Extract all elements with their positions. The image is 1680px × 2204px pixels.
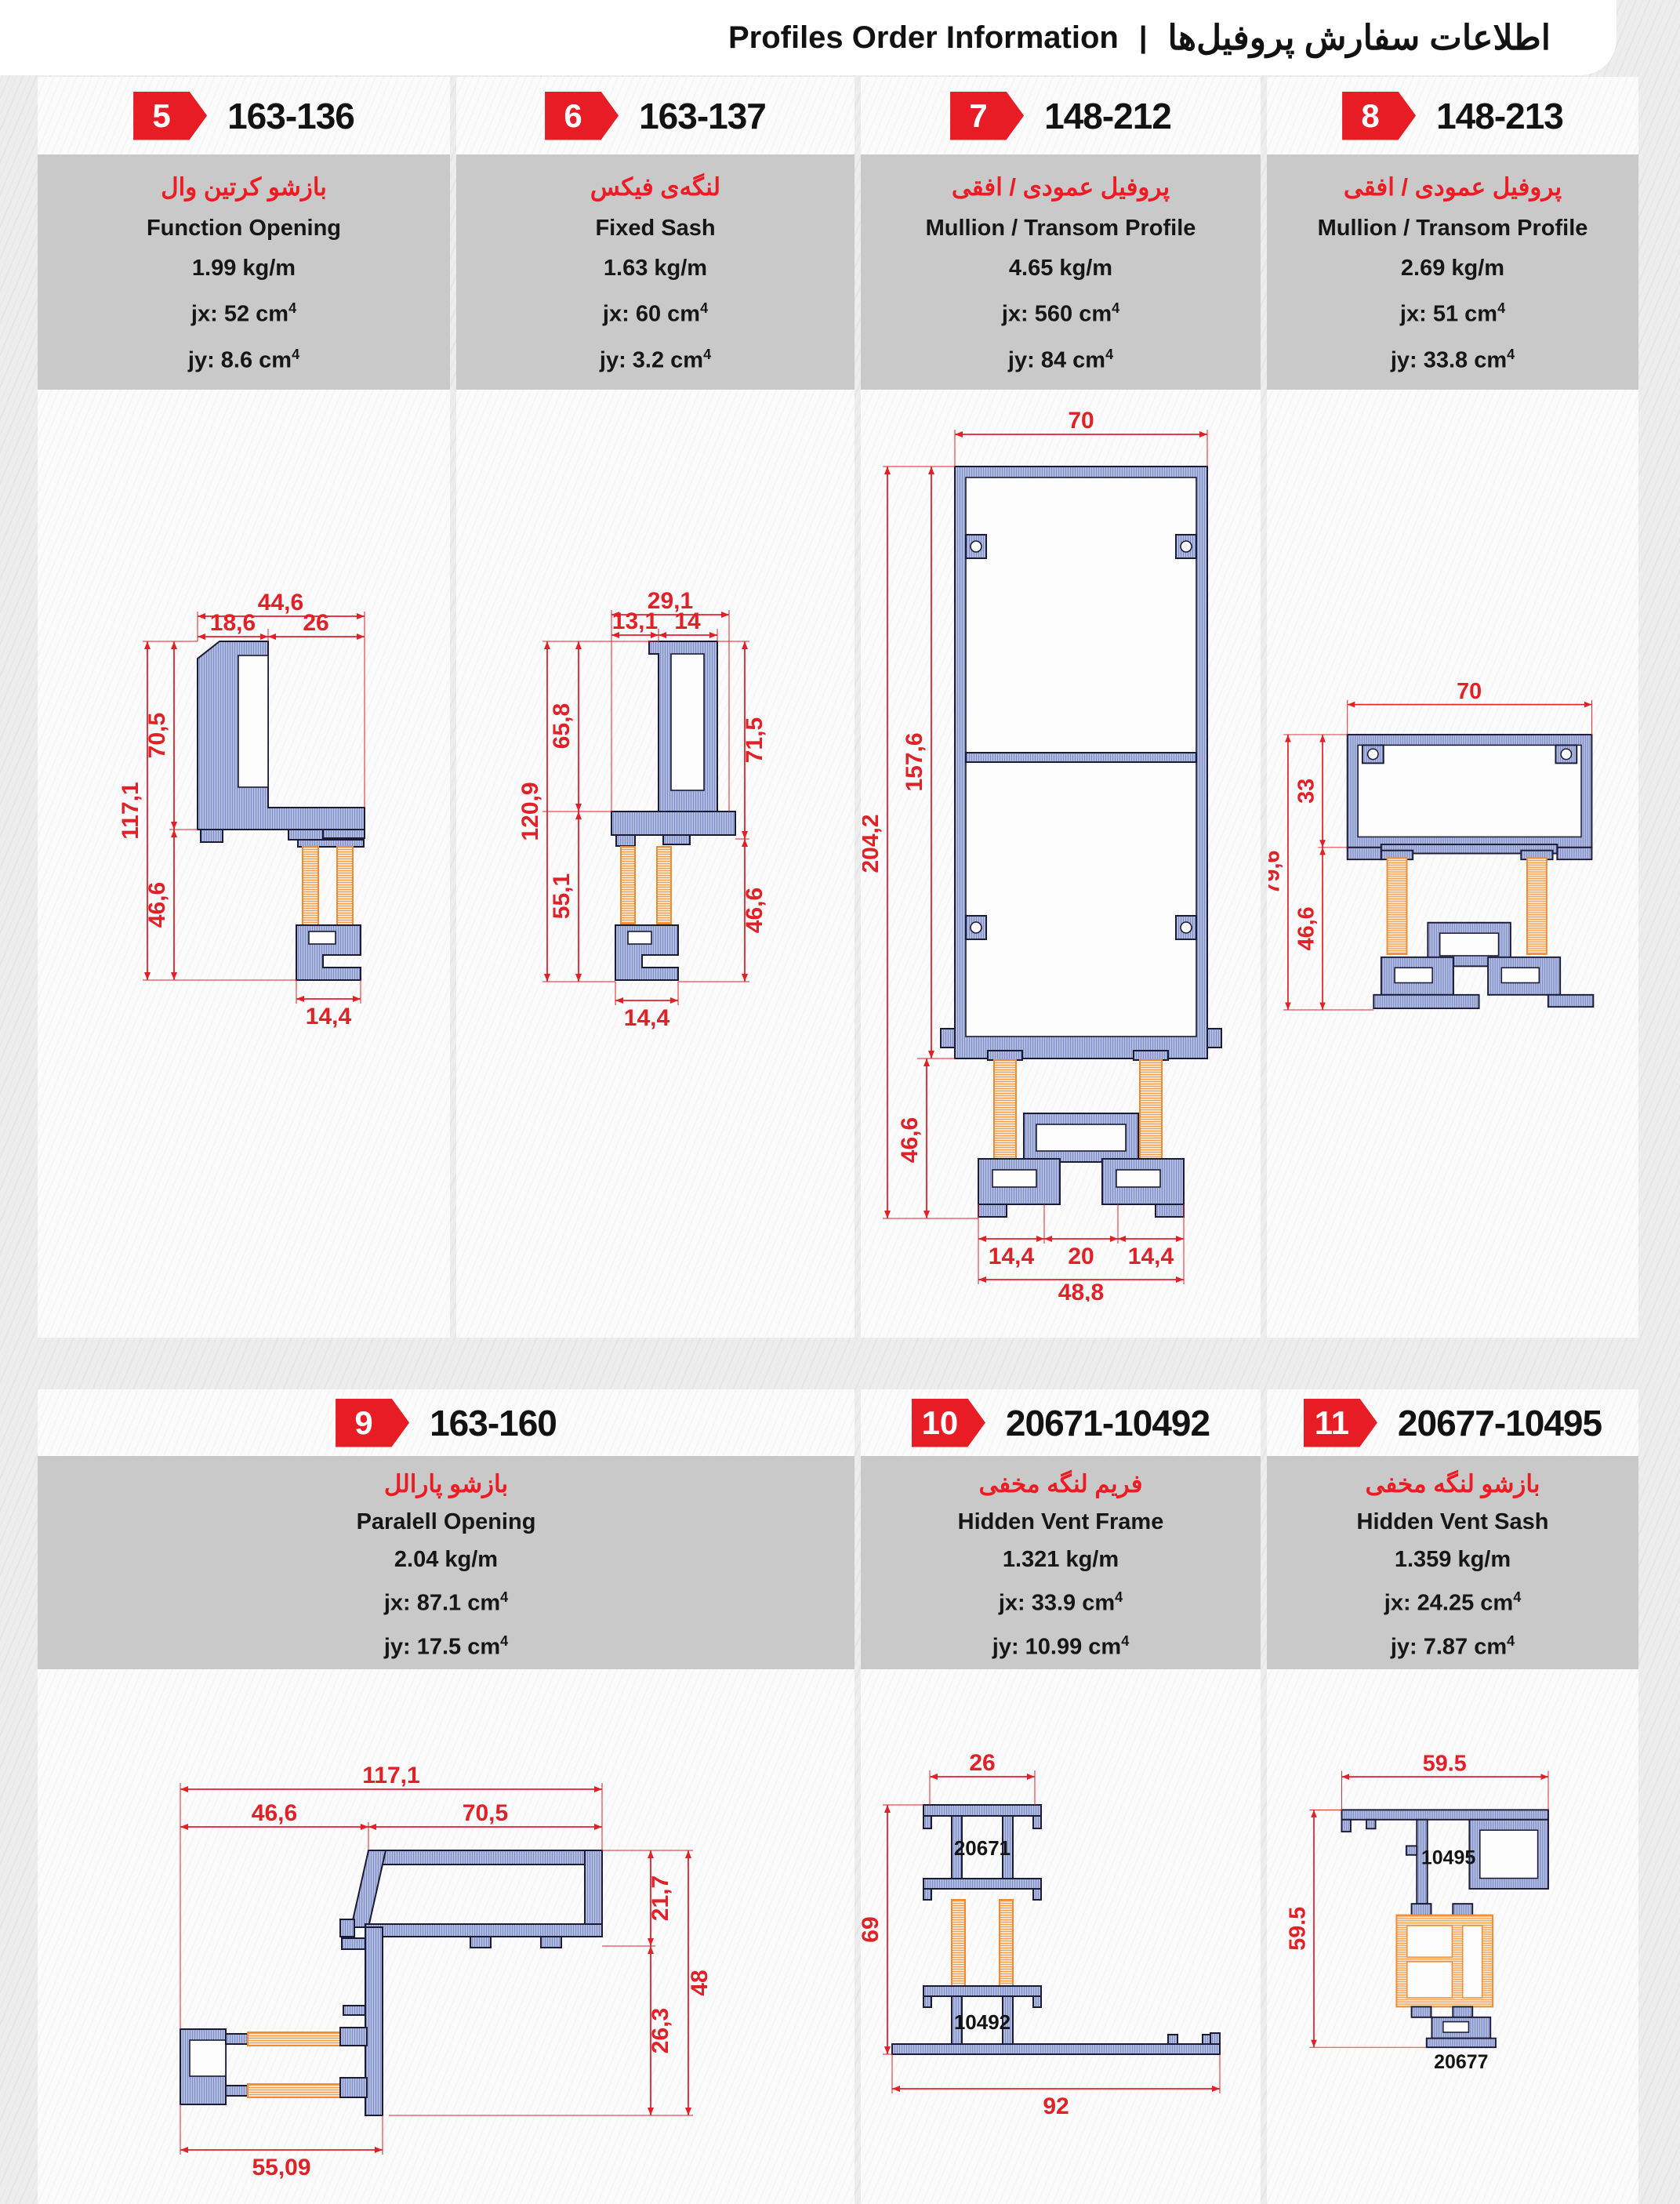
name-english: Hidden Vent Sash: [1267, 1503, 1638, 1541]
weight: 1.321 kg/m: [861, 1541, 1261, 1578]
moment-jy: jy: 84 cm4: [861, 335, 1261, 381]
name-english: Function Opening: [38, 208, 450, 249]
svg-text:59.5: 59.5: [1286, 1907, 1311, 1951]
title-separator: |: [1138, 21, 1149, 55]
profile-geometry: [198, 641, 365, 980]
profile-code: 163-136: [227, 95, 354, 137]
info-box: پروفیل عمودی / افقی Mullion / Transom Pr…: [1267, 154, 1638, 390]
svg-text:46,6: 46,6: [144, 882, 170, 928]
index-badge: 5: [133, 92, 207, 140]
name-english: Hidden Vent Frame: [861, 1503, 1261, 1541]
card-header: 9 163-160: [38, 1389, 855, 1456]
svg-text:70,5: 70,5: [144, 713, 170, 758]
profile-card-20671-10492: 10 20671-10492 فریم لنگه مخفی Hidden Ven…: [861, 1389, 1261, 2204]
svg-text:26,3: 26,3: [648, 2008, 673, 2053]
page-title-persian: اطلاعات سفارش پروفیل‌ها: [1167, 18, 1551, 58]
moment-jy: jy: 3.2 cm4: [456, 335, 855, 381]
weight: 1.99 kg/m: [38, 249, 450, 289]
svg-text:46,6: 46,6: [742, 888, 767, 933]
svg-text:10492: 10492: [954, 2010, 1011, 2034]
name-persian: لنگه‌ی فیکس: [456, 167, 855, 208]
card-header: 7 148-212: [861, 77, 1261, 154]
svg-text:204,2: 204,2: [862, 814, 884, 873]
svg-text:26: 26: [969, 1750, 995, 1776]
weight: 1.63 kg/m: [456, 249, 855, 289]
svg-text:59.5: 59.5: [1423, 1752, 1467, 1777]
profile-geometry: [1348, 735, 1594, 1008]
moment-jx: jx: 33.9 cm4: [861, 1578, 1261, 1622]
index-badge: 7: [950, 92, 1024, 140]
card-header: 11 20677-10495: [1267, 1389, 1638, 1456]
svg-text:13,1: 13,1: [612, 608, 658, 634]
cross-section-drawing: 29,1 13,1 14 120,9 65,8 55,1 71,5: [502, 580, 831, 1145]
moment-jx: jx: 60 cm4: [456, 289, 855, 335]
svg-text:65,8: 65,8: [549, 703, 575, 749]
profile-card-148-213: 8 148-213 پروفیل عمودی / افقی Mullion / …: [1267, 77, 1638, 1338]
name-persian: فریم لنگه مخفی: [861, 1465, 1261, 1503]
name-persian: پروفیل عمودی / افقی: [861, 167, 1261, 208]
info-box: بازشو کرتین وال Function Opening 1.99 kg…: [38, 154, 450, 390]
name-english: Mullion / Transom Profile: [1267, 208, 1638, 249]
moment-jy: jy: 10.99 cm4: [861, 1622, 1261, 1666]
name-persian: بازشو کرتین وال: [38, 167, 450, 208]
svg-text:14,4: 14,4: [624, 1005, 670, 1031]
svg-text:14: 14: [674, 608, 701, 634]
name-english: Paralell Opening: [38, 1503, 855, 1541]
svg-text:20: 20: [1068, 1244, 1094, 1269]
svg-text:33: 33: [1294, 779, 1319, 804]
svg-text:46,6: 46,6: [252, 1800, 297, 1826]
cross-section-drawing: 10495 20677 59.5 59.5: [1278, 1725, 1638, 2195]
name-english: Fixed Sash: [456, 208, 855, 249]
moment-jy: jy: 8.6 cm4: [38, 335, 450, 381]
svg-text:21,7: 21,7: [648, 1875, 673, 1921]
catalog-page: Profiles Order Information | اطلاعات سفا…: [0, 0, 1680, 2204]
svg-text:46,6: 46,6: [1294, 906, 1319, 950]
moment-jy: jy: 7.87 cm4: [1267, 1622, 1638, 1666]
svg-text:92: 92: [1043, 2093, 1069, 2119]
svg-text:14,4: 14,4: [306, 1004, 352, 1029]
weight: 2.69 kg/m: [1267, 249, 1638, 289]
svg-text:14,4: 14,4: [989, 1244, 1035, 1269]
info-box: بازشو لنگه مخفی Hidden Vent Sash 1.359 k…: [1267, 1456, 1638, 1669]
cross-section-drawing: 117,1 46,6 70,5 21,7 26,3 48 55,09: [102, 1741, 729, 2180]
svg-text:117,1: 117,1: [362, 1763, 419, 1788]
cross-section-drawing: 70 204,2 157,6 46,6 14,4 20 14,4: [862, 408, 1239, 1302]
svg-text:26: 26: [303, 610, 328, 636]
index-badge: 11: [1304, 1399, 1377, 1447]
svg-text:20671: 20671: [954, 1836, 1011, 1860]
svg-text:10495: 10495: [1421, 1846, 1475, 1868]
name-persian: بازشو لنگه مخفی: [1267, 1465, 1638, 1503]
page-header: Profiles Order Information | اطلاعات سفا…: [0, 0, 1617, 75]
svg-text:117,1: 117,1: [118, 782, 143, 839]
profile-code: 20671-10492: [1006, 1402, 1210, 1444]
moment-jy: jy: 33.8 cm4: [1267, 335, 1638, 381]
svg-text:70,5: 70,5: [463, 1800, 508, 1826]
moment-jx: jx: 24.25 cm4: [1267, 1578, 1638, 1622]
weight: 4.65 kg/m: [861, 249, 1261, 289]
profile-card-148-212: 7 148-212 پروفیل عمودی / افقی Mullion / …: [861, 77, 1261, 1338]
name-persian: بازشو پارالل: [38, 1465, 855, 1503]
svg-text:48,8: 48,8: [1058, 1280, 1104, 1302]
card-header: 6 163-137: [456, 77, 855, 154]
profile-card-20677-10495: 11 20677-10495 بازشو لنگه مخفی Hidden Ve…: [1267, 1389, 1638, 2204]
moment-jx: jx: 87.1 cm4: [38, 1578, 855, 1622]
name-persian: پروفیل عمودی / افقی: [1267, 167, 1638, 208]
moment-jx: jx: 51 cm4: [1267, 289, 1638, 335]
svg-text:20677: 20677: [1434, 2051, 1488, 2073]
cross-section-drawing: 70 79,6 33 46,6: [1268, 674, 1637, 1051]
profile-code: 148-212: [1044, 95, 1171, 137]
card-header: 5 163-136: [38, 77, 450, 154]
card-header: 8 148-213: [1267, 77, 1638, 154]
index-badge: 10: [912, 1399, 985, 1447]
index-badge: 9: [336, 1399, 409, 1447]
svg-text:55,09: 55,09: [252, 2155, 310, 2180]
svg-text:46,6: 46,6: [897, 1117, 923, 1163]
svg-text:48: 48: [687, 1970, 713, 1995]
svg-text:70: 70: [1068, 408, 1094, 434]
svg-text:18,6: 18,6: [210, 610, 256, 636]
profile-geometry: [892, 1805, 1220, 2054]
info-box: لنگه‌ی فیکس Fixed Sash 1.63 kg/m jx: 60 …: [456, 154, 855, 390]
info-box: بازشو پارالل Paralell Opening 2.04 kg/m …: [38, 1456, 855, 1669]
profile-geometry: [1341, 1810, 1548, 2047]
profile-geometry: [180, 1850, 602, 2115]
profile-code: 148-213: [1436, 95, 1563, 137]
profile-code: 20677-10495: [1398, 1402, 1602, 1444]
profile-geometry: [611, 641, 735, 980]
index-badge: 6: [545, 92, 619, 140]
page-title-english: Profiles Order Information: [728, 20, 1119, 56]
svg-text:79,6: 79,6: [1268, 850, 1284, 894]
info-box: فریم لنگه مخفی Hidden Vent Frame 1.321 k…: [861, 1456, 1261, 1669]
profile-code: 163-137: [639, 95, 766, 137]
weight: 2.04 kg/m: [38, 1541, 855, 1578]
name-english: Mullion / Transom Profile: [861, 208, 1261, 249]
svg-text:14,4: 14,4: [1128, 1244, 1174, 1269]
profile-code: 163-160: [430, 1402, 557, 1444]
svg-text:55,1: 55,1: [549, 873, 575, 919]
svg-text:44,6: 44,6: [258, 590, 303, 615]
moment-jx: jx: 560 cm4: [861, 289, 1261, 335]
moment-jx: jx: 52 cm4: [38, 289, 450, 335]
svg-text:157,6: 157,6: [902, 732, 927, 791]
index-badge: 8: [1342, 92, 1416, 140]
moment-jy: jy: 17.5 cm4: [38, 1622, 855, 1666]
svg-text:71,5: 71,5: [742, 717, 767, 763]
weight: 1.359 kg/m: [1267, 1541, 1638, 1578]
dimension-annotations: 117,1 46,6 70,5 21,7 26,3 48 55,09: [180, 1763, 713, 2180]
info-box: پروفیل عمودی / افقی Mullion / Transom Pr…: [861, 154, 1261, 390]
profile-geometry: [941, 467, 1221, 1217]
svg-text:70: 70: [1457, 679, 1482, 704]
profile-card-163-137: 6 163-137 لنگه‌ی فیکس Fixed Sash 1.63 kg…: [456, 77, 855, 1338]
profile-card-163-160: 9 163-160 بازشو پارالل Paralell Opening …: [38, 1389, 855, 2204]
cross-section-drawing: 20671 10492 26 69 92: [861, 1733, 1237, 2188]
svg-text:69: 69: [861, 1916, 884, 1942]
svg-text:120,9: 120,9: [517, 782, 543, 841]
profile-card-163-136: 5 163-136 بازشو کرتین وال Function Openi…: [38, 77, 450, 1338]
card-header: 10 20671-10492: [861, 1389, 1261, 1456]
cross-section-drawing: 44,6 18,6 26 117,1 70,5 46,6 14,4: [102, 580, 431, 1145]
